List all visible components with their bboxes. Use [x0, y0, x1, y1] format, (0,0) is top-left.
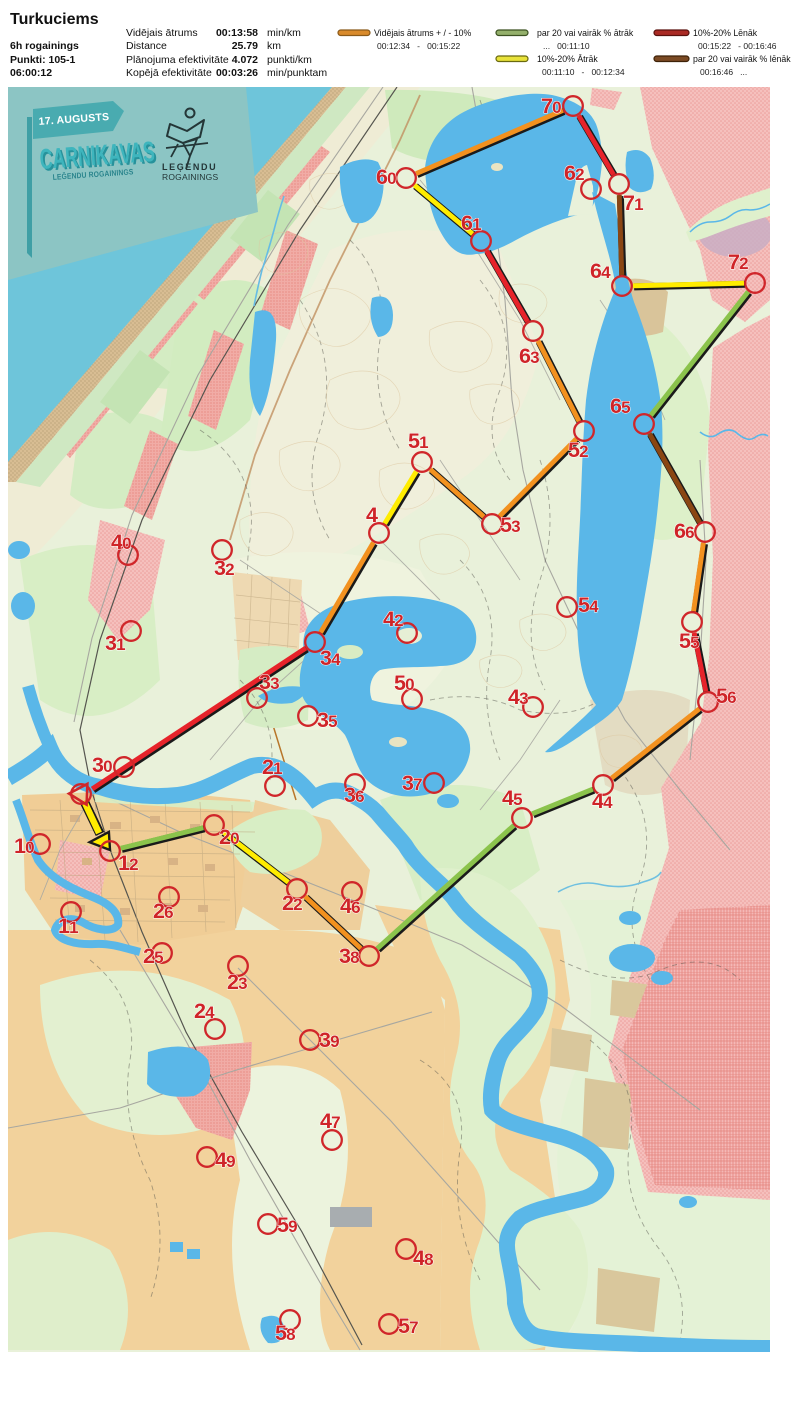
svg-text:65: 65: [610, 394, 630, 418]
svg-text:31: 31: [105, 631, 125, 655]
svg-text:11: 11: [58, 914, 78, 938]
svg-text:60: 60: [376, 165, 396, 189]
svg-text:51: 51: [408, 429, 428, 453]
svg-text:72: 72: [728, 250, 748, 274]
svg-text:10: 10: [14, 834, 34, 858]
svg-text:4: 4: [366, 503, 378, 527]
svg-text:63: 63: [519, 344, 539, 368]
svg-text:12: 12: [118, 851, 138, 875]
svg-text:38: 38: [339, 944, 359, 968]
svg-text:20: 20: [219, 825, 239, 849]
svg-text:34: 34: [320, 646, 341, 670]
svg-text:56: 56: [716, 684, 736, 708]
svg-text:30: 30: [92, 753, 112, 777]
svg-text:59: 59: [277, 1213, 297, 1237]
svg-text:32: 32: [214, 556, 234, 580]
svg-text:50: 50: [394, 671, 414, 695]
svg-text:21: 21: [262, 755, 282, 779]
svg-text:ROGAININGS: ROGAININGS: [162, 172, 218, 182]
svg-text:53: 53: [500, 513, 520, 537]
svg-text:42: 42: [383, 607, 403, 631]
svg-text:47: 47: [320, 1109, 340, 1133]
svg-text:23: 23: [227, 970, 247, 994]
svg-text:64: 64: [590, 259, 611, 283]
svg-text:43: 43: [508, 685, 528, 709]
svg-text:24: 24: [194, 999, 215, 1023]
svg-text:54: 54: [578, 593, 599, 617]
svg-text:71: 71: [623, 191, 643, 215]
svg-text:57: 57: [398, 1314, 418, 1338]
svg-text:25: 25: [143, 944, 163, 968]
svg-text:61: 61: [461, 211, 481, 235]
svg-text:70: 70: [541, 94, 561, 118]
svg-text:49: 49: [215, 1148, 235, 1172]
svg-text:58: 58: [275, 1321, 295, 1345]
svg-text:46: 46: [340, 894, 360, 918]
svg-text:36: 36: [344, 783, 364, 807]
svg-text:52: 52: [568, 438, 588, 462]
svg-text:66: 66: [674, 519, 694, 543]
svg-text:37: 37: [402, 771, 422, 795]
svg-text:62: 62: [564, 161, 584, 185]
svg-text:39: 39: [319, 1028, 339, 1052]
svg-text:33: 33: [259, 670, 279, 694]
svg-text:48: 48: [413, 1246, 433, 1270]
svg-text:22: 22: [282, 891, 302, 915]
svg-text:40: 40: [111, 530, 131, 554]
svg-text:26: 26: [153, 899, 173, 923]
svg-text:35: 35: [317, 708, 337, 732]
svg-text:44: 44: [592, 789, 613, 813]
svg-text:45: 45: [502, 786, 522, 810]
svg-text:55: 55: [679, 629, 699, 653]
svg-text:LEĢENDU: LEĢENDU: [162, 162, 217, 172]
